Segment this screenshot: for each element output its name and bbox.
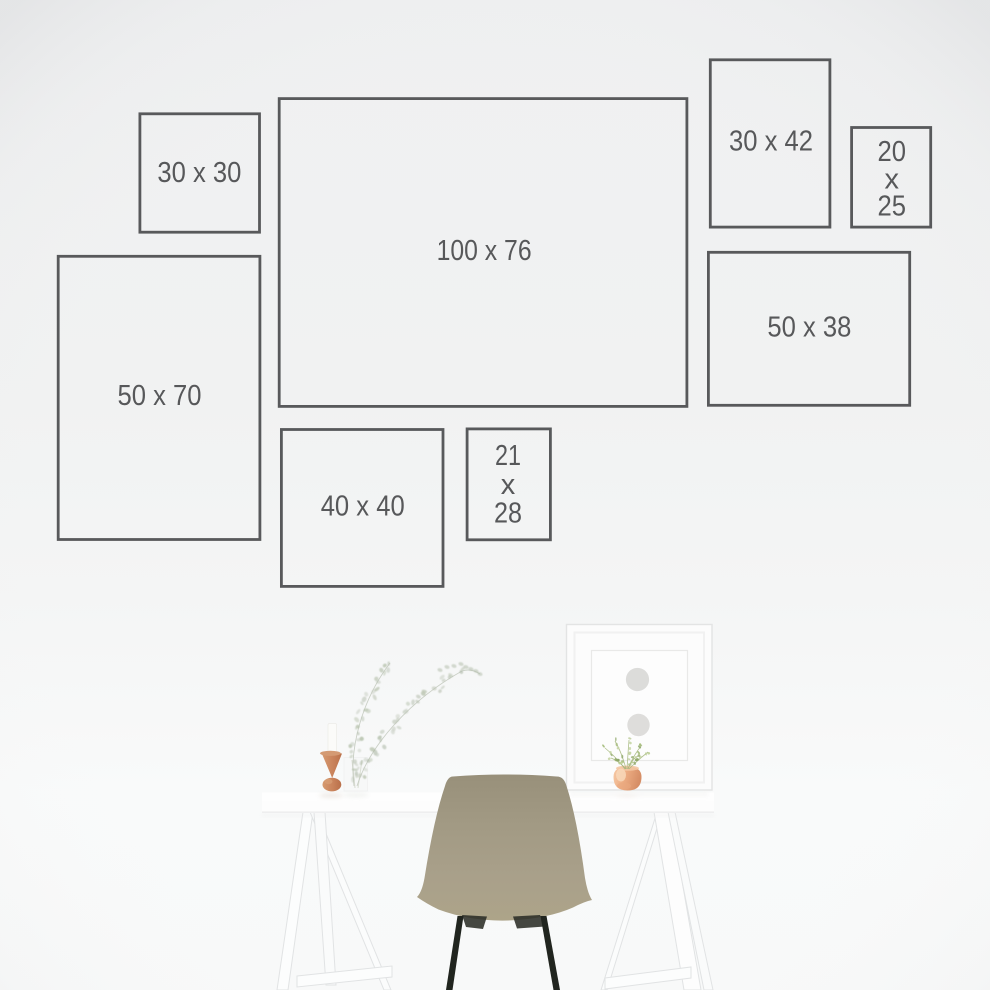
- svg-text:50 x 38: 50 x 38: [767, 311, 851, 343]
- svg-text:40 x 40: 40 x 40: [321, 490, 405, 522]
- svg-text:50 x 70: 50 x 70: [118, 380, 202, 412]
- svg-text:30 x 30: 30 x 30: [157, 157, 241, 189]
- svg-text:100 x 76: 100 x 76: [437, 235, 532, 267]
- svg-text:21: 21: [495, 440, 521, 472]
- svg-text:28: 28: [494, 497, 522, 529]
- svg-text:25: 25: [878, 190, 907, 222]
- svg-text:30 x 42: 30 x 42: [729, 125, 813, 157]
